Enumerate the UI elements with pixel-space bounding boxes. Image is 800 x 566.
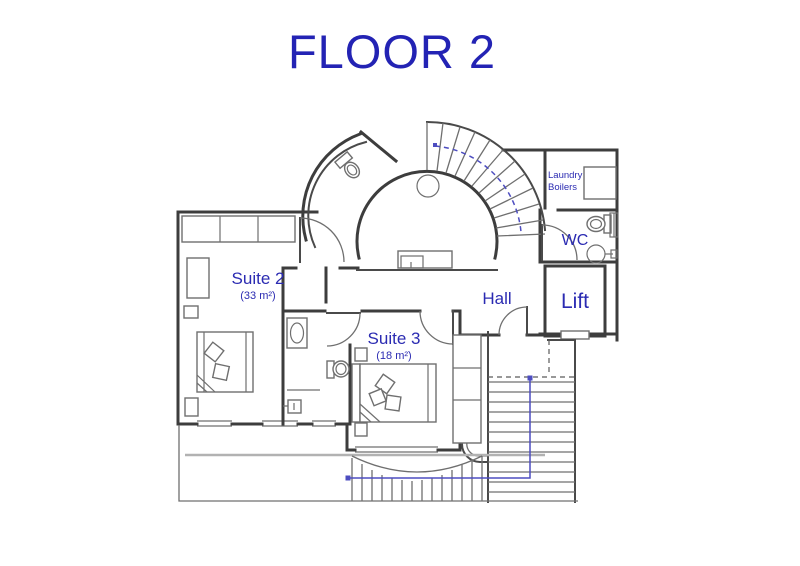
laundry-fixtures [584,167,616,199]
desk [187,258,209,298]
bedside-table [185,398,198,416]
floor-plan-drawing: Suite 2 (33 m²) Suite 3 (18 m²) Hall Lif… [0,0,800,566]
ceiling-light [417,175,439,197]
laundry-label-line1: Laundry [548,170,583,181]
toilet-icon [587,215,611,233]
round-hall-fixtures [335,152,452,268]
toilet-icon [327,361,349,378]
sink-icon [587,245,617,263]
bed-icon [352,364,436,422]
suite2-furniture [182,216,295,416]
bedside-table [184,306,198,318]
laundry-label-line2: Boilers [548,182,577,193]
straight-staircase-icon [488,340,575,492]
door-arcs [300,218,577,346]
suite2-walls [178,212,350,426]
floorplan-page: FLOOR 2 [0,0,800,566]
boiler-icon [584,167,616,199]
suite2-area-label: (33 m²) [240,290,275,302]
lift-door [561,331,589,339]
curved-staircase-icon [427,122,545,236]
bedside-table [355,348,367,361]
wc-label: WC [562,232,589,249]
suite3-area-label: (18 m²) [376,350,411,362]
hall-label: Hall [482,289,511,308]
wardrobe [182,216,295,242]
suite3-bathroom-fixtures [283,318,349,413]
cabinet [398,251,452,268]
lift-label: Lift [561,290,589,313]
wardrobe [453,335,481,443]
suite3-furniture [352,335,481,443]
bedside-table [355,423,367,436]
suite3-label: Suite 3 [368,329,421,348]
balcony [179,425,578,501]
suite2-label: Suite 2 [232,269,285,288]
bed-icon [197,332,253,392]
toilet-icon [335,152,364,182]
wc-fixtures [587,213,618,263]
